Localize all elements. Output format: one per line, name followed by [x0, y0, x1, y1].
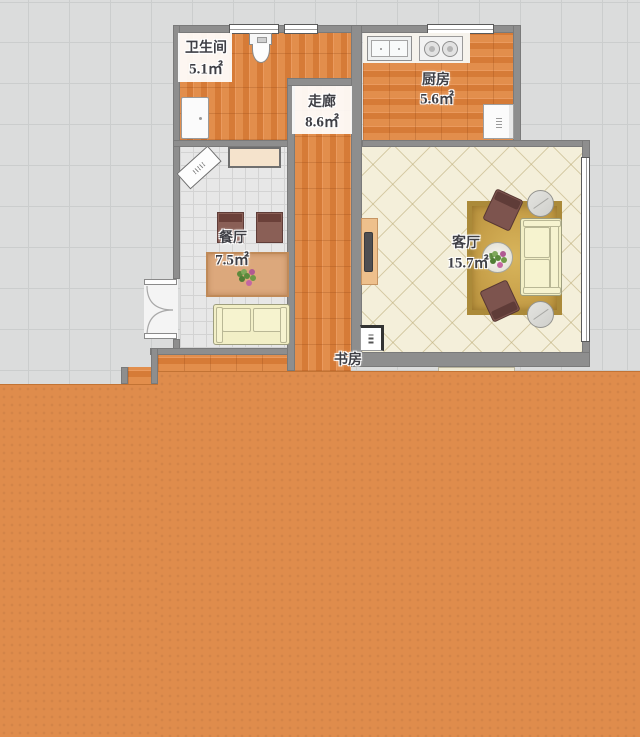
entrance-door-leaf-top [144, 279, 177, 285]
sink-basin-right [389, 40, 408, 57]
dining-table-flowers-icon [244, 273, 250, 279]
wall-lower-left-room [121, 367, 128, 384]
side-table-top-icon [527, 190, 554, 217]
loveseat-cushion-left [222, 308, 251, 332]
wall-living-bottom [351, 352, 590, 367]
loveseat-arm-right [280, 307, 287, 343]
dining-chair-right [256, 212, 283, 243]
side-table-bottom-icon [527, 301, 554, 328]
wall-corridor-top [287, 78, 353, 86]
study-label: 书房 [334, 349, 362, 369]
shower-icon [181, 97, 209, 139]
living-label: 客厅 [452, 232, 480, 252]
wall-kitchen-right [513, 25, 521, 147]
sofa-backrest [550, 225, 559, 291]
living-room-window [581, 157, 590, 342]
dining-loveseat-icon [213, 304, 290, 345]
hallway-window [284, 24, 318, 34]
fridge-icon [483, 104, 514, 139]
tv-icon [364, 232, 373, 272]
wall-corridor-right [351, 25, 362, 367]
loveseat-arm-left [216, 307, 223, 343]
sofa-arm-bottom [523, 287, 561, 294]
bathroom-area: 5.1㎡ [189, 58, 223, 79]
stove-burner-left [424, 41, 440, 57]
bathroom-label: 卫生间 [185, 37, 227, 57]
left-room-floor-sliver [128, 367, 151, 384]
sink-basin-left [371, 40, 390, 57]
kitchen-area: 5.6㎡ [420, 88, 454, 109]
living-sofa-icon [520, 218, 562, 296]
sofa-arm-top [523, 220, 561, 227]
orange-overlay-left [0, 384, 158, 737]
living-area: 15.7㎡ [447, 252, 488, 273]
sofa-cushion-bottom [524, 259, 550, 290]
sideboard-icon [228, 147, 281, 168]
wall-living-top [362, 140, 590, 147]
stove-burner-right [442, 41, 458, 57]
wall-dining-bottom [150, 348, 295, 355]
kitchen-label: 厨房 [422, 69, 450, 89]
corridor-area: 8.6㎡ [305, 111, 339, 132]
bedroom-floor-sliver [158, 355, 287, 371]
kitchen-sink-icon [367, 36, 412, 61]
wall-stub-left [151, 348, 158, 384]
dining-area: 7.5㎡ [215, 249, 249, 270]
loveseat-cushion-right [253, 308, 282, 332]
kitchen-stove-icon [419, 36, 463, 61]
orange-overlay-main [158, 371, 640, 737]
sofa-cushion-top [524, 227, 550, 258]
dining-label: 餐厅 [219, 227, 247, 247]
floorplan-canvas: 卫生间 5.1㎡ 厨房 5.6㎡ 走廊 8.6㎡ 餐厅 7.5㎡ 客厅 15.7… [0, 0, 640, 737]
wall-bathroom-dining-divider [173, 140, 295, 147]
entrance-door-leaf-bottom [144, 333, 177, 339]
living-corner-fixture-icon [360, 325, 384, 351]
coffee-table-plant-icon [495, 255, 501, 261]
corridor-label: 走廊 [308, 91, 336, 111]
